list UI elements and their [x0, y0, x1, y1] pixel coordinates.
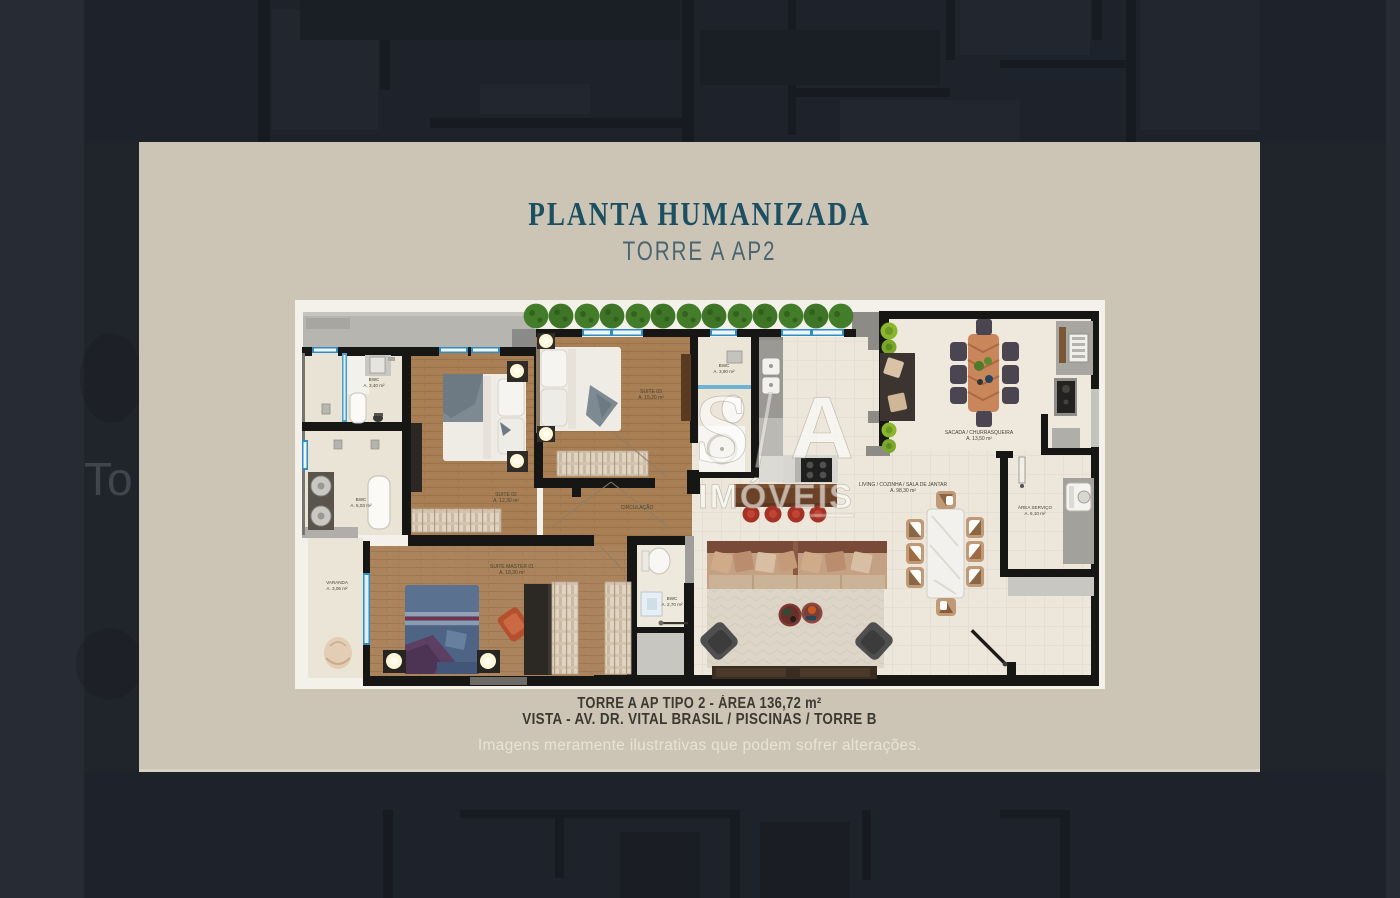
svg-text:IMÓVEIS: IMÓVEIS — [698, 478, 854, 516]
svg-text:A. 6,10 m²: A. 6,10 m² — [1024, 511, 1046, 516]
svg-text:BWC: BWC — [356, 497, 367, 502]
svg-text:A. 18,30 m²: A. 18,30 m² — [499, 570, 525, 576]
svg-text:ÁREA SERVIÇO: ÁREA SERVIÇO — [1018, 504, 1053, 510]
svg-text:A. 15,20 m²: A. 15,20 m² — [638, 395, 664, 401]
svg-text:A. 98,30 m²: A. 98,30 m² — [890, 488, 916, 494]
svg-text:BWC: BWC — [719, 363, 730, 368]
svg-text:A. 3,06 m²: A. 3,06 m² — [326, 586, 348, 591]
svg-text:S: S — [694, 373, 750, 484]
svg-text:A. 12,30 m²: A. 12,30 m² — [493, 498, 519, 504]
svg-text:BWC: BWC — [667, 596, 678, 601]
svg-text:A. 13,50 m²: A. 13,50 m² — [966, 436, 992, 442]
svg-text:BWC: BWC — [369, 377, 380, 382]
svg-text:A. 2,70 m²: A. 2,70 m² — [661, 602, 683, 607]
svg-text:CIRCULAÇÃO: CIRCULAÇÃO — [621, 504, 654, 511]
svg-text:VARANDA: VARANDA — [326, 580, 349, 585]
svg-text:A. 3,40 m²: A. 3,40 m² — [363, 383, 385, 388]
svg-text:A. 5,03 m²: A. 5,03 m² — [350, 503, 372, 508]
svg-text:A: A — [790, 378, 854, 477]
